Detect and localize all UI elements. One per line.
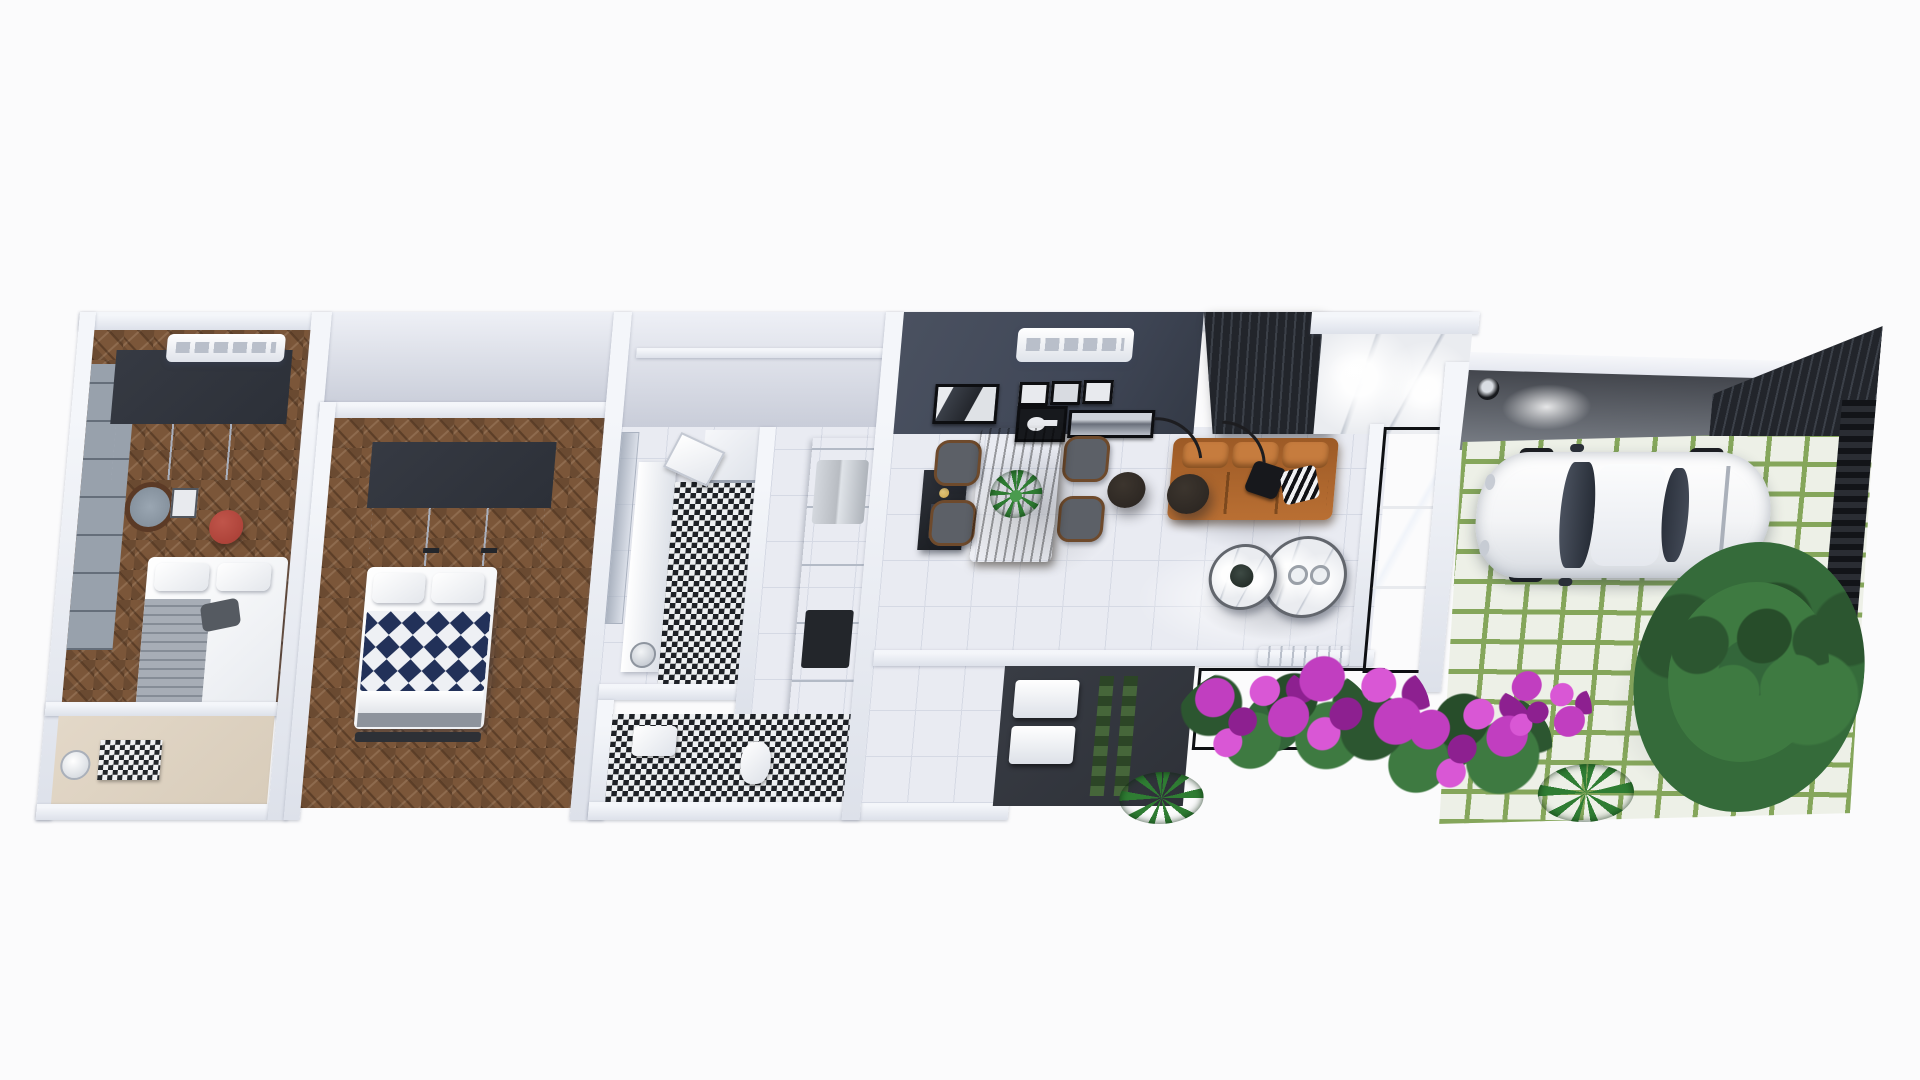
chevron-duvet bbox=[360, 611, 491, 691]
glass-candleholder bbox=[1309, 565, 1331, 585]
bedroom2-bed bbox=[354, 567, 498, 729]
pillow bbox=[372, 573, 427, 603]
bedroom1-bed bbox=[135, 557, 289, 715]
bath2-fixture bbox=[631, 726, 678, 756]
guitar-art-neck bbox=[1041, 420, 1058, 426]
bed2-grey-runner bbox=[357, 713, 482, 727]
steel-fridge bbox=[811, 460, 869, 524]
car-roof bbox=[1590, 464, 1667, 566]
wall-bottom-center bbox=[588, 802, 1010, 820]
render-canvas: { "scene": { "type": "3d-floor-plan-rend… bbox=[0, 0, 1920, 1080]
outdoor-unit bbox=[1008, 726, 1075, 764]
wall-lamp-glow bbox=[1500, 384, 1594, 430]
bedroom2-wall-top bbox=[319, 402, 620, 418]
gold-faucet bbox=[939, 488, 950, 498]
wall-bed1-laundry bbox=[45, 702, 278, 716]
small-frame bbox=[170, 488, 199, 518]
wall-above-marble bbox=[1310, 312, 1480, 334]
dining-chair bbox=[1061, 436, 1111, 482]
bedroom1-ac-unit bbox=[166, 334, 286, 362]
wardrobe-handle bbox=[481, 548, 497, 553]
roof-ridge bbox=[636, 348, 889, 358]
glass-mullion bbox=[1380, 506, 1436, 509]
palm-art-frame bbox=[932, 384, 999, 424]
sofa-back-cushion bbox=[1281, 442, 1329, 468]
ac-vents bbox=[176, 342, 276, 353]
bed2-sheet bbox=[358, 691, 484, 713]
bedroom2-wardrobe-top bbox=[367, 442, 557, 508]
pillow bbox=[154, 563, 210, 591]
pillow bbox=[216, 563, 272, 591]
dark-cooktop bbox=[801, 610, 854, 668]
dining-ac-unit bbox=[1016, 328, 1135, 362]
wall-bottom-left bbox=[36, 804, 269, 820]
wardrobe-handle bbox=[423, 548, 439, 553]
glass-candleholder bbox=[1287, 565, 1309, 585]
roof-band-corridor bbox=[620, 312, 902, 427]
bed2-foot-bench bbox=[354, 732, 481, 742]
checker-rug bbox=[97, 740, 162, 780]
car-mirror bbox=[1558, 578, 1573, 586]
small-frame bbox=[1082, 380, 1114, 404]
pillow bbox=[431, 573, 486, 603]
decor-object bbox=[1226, 562, 1257, 591]
small-frame bbox=[1018, 382, 1050, 406]
dining-chair bbox=[1056, 496, 1106, 542]
bedroom2-wardrobe-doors bbox=[368, 508, 545, 566]
grey-blanket bbox=[135, 599, 211, 715]
ac-vents bbox=[1026, 338, 1125, 352]
car-mirror bbox=[1570, 444, 1585, 452]
ceiling-spotlight-glow bbox=[1325, 350, 1385, 392]
small-frame bbox=[1050, 381, 1082, 405]
roof-band-bedroom2 bbox=[320, 312, 614, 408]
glass-mullion bbox=[1373, 586, 1429, 589]
outdoor-unit bbox=[1012, 680, 1079, 718]
bedroom1-wardrobe-doors bbox=[111, 424, 280, 480]
house-plan bbox=[35, 312, 1880, 827]
